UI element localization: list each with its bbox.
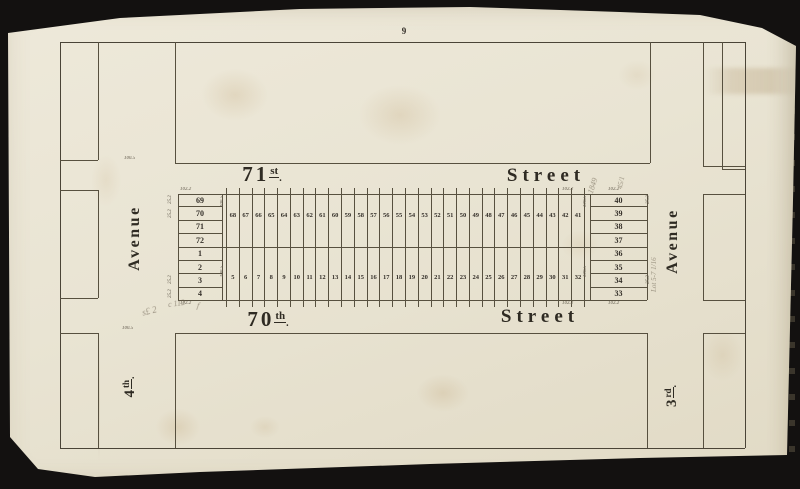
lot-number-south: 12: [316, 274, 328, 281]
lot-number-south: 32: [572, 274, 584, 281]
map-sheet: 9: [0, 0, 800, 489]
street-ordinal: st: [269, 165, 279, 178]
plate-border-left: [60, 42, 61, 448]
lot-cell: 39: [590, 207, 647, 220]
paper-stain: [190, 60, 280, 130]
lot-number-north: 61: [316, 212, 328, 219]
lot-number: 36: [615, 249, 623, 258]
avenue-label-4th: 4th.: [122, 352, 140, 422]
lot-cell: 68 5: [227, 188, 240, 307]
lot-cell: 47 26: [495, 188, 508, 307]
lot-cell: 36: [590, 248, 647, 261]
page-number: 9: [396, 26, 412, 36]
handwritten-note: f: [196, 301, 200, 310]
lot-number-north: 46: [508, 212, 520, 219]
avenue-number: 4: [122, 389, 138, 398]
lot-number-south: 26: [495, 274, 507, 281]
lot-number-south: 8: [265, 274, 277, 281]
lot-number-south: 15: [355, 274, 367, 281]
lot-number: 40: [615, 196, 623, 205]
parcel-line: [703, 333, 745, 334]
lot-cell: 41 32: [572, 188, 584, 307]
lot-number-north: 64: [278, 212, 290, 219]
parcel-line: [60, 190, 98, 191]
lot-number-south: 25: [483, 274, 495, 281]
lot-cell: 72: [178, 234, 222, 247]
paper-stain: [408, 368, 478, 418]
lot-cell: 55 18: [393, 188, 406, 307]
street-number: 71: [242, 162, 269, 186]
lot-cell: 66 7: [253, 188, 266, 307]
lot-number: 35: [615, 263, 623, 272]
lot-cell: 61 12: [316, 188, 329, 307]
street-ordinal: th: [274, 310, 286, 323]
dimension-label: 25.2: [168, 209, 173, 218]
lot-number-south: 24: [470, 274, 482, 281]
lot-cell: 57 16: [368, 188, 381, 307]
dimension-label: 25.2: [168, 195, 173, 204]
east-column-right: [647, 194, 648, 300]
west-column-right: [222, 194, 223, 300]
lot-number-north: 55: [393, 212, 405, 219]
lot-number-south: 16: [368, 274, 380, 281]
avenue-east-line: [722, 42, 723, 169]
lot-cell: 33: [590, 288, 647, 300]
lot-number-north: 65: [265, 212, 277, 219]
lot-number-north: 60: [329, 212, 341, 219]
lot-cell: 53 20: [419, 188, 432, 307]
lot-number-north: 43: [547, 212, 559, 219]
lot-number-south: 11: [304, 274, 316, 281]
lot-cell: 3: [178, 274, 222, 287]
lot-cell: 59 14: [342, 188, 355, 307]
handwritten-note: s£ 2: [141, 304, 158, 317]
parcel-line: [60, 298, 98, 299]
block-south-top: [175, 333, 647, 334]
avenue-ordinal: th: [121, 379, 132, 389]
lot-cell: 37: [590, 234, 647, 247]
dimension-label: 100.5: [122, 326, 133, 331]
plate-border-right: [745, 42, 746, 448]
avenue-label-3rd: 3rd.: [664, 361, 682, 431]
dimension-label: 102.2: [562, 301, 573, 306]
lot-cell: 64 9: [278, 188, 291, 307]
plate-border-bottom: [60, 448, 745, 449]
avenue-east-line: [703, 333, 704, 448]
lot-cell: 38: [590, 221, 647, 234]
lot-cell: 4: [178, 288, 222, 300]
handwritten-note: c 112: [167, 298, 185, 309]
parcel-line: [703, 166, 745, 167]
street-lot-grid: 68 5 67 6 66 7 65 8 64 9 63 10 62 11 61: [226, 188, 585, 307]
lot-cell: 49 24: [470, 188, 483, 307]
lot-cell: 62 11: [304, 188, 317, 307]
lot-cell: 42 31: [559, 188, 572, 307]
lot-number-north: 50: [457, 212, 469, 219]
lot-number: 70: [196, 209, 204, 218]
street-word-south: Street: [460, 306, 620, 328]
dimension-label: 102.2: [562, 187, 573, 192]
paper-stain: [86, 145, 126, 215]
lot-number-north: 49: [470, 212, 482, 219]
handwritten-note: 45/1: [616, 176, 626, 190]
lot-number-north: 56: [380, 212, 392, 219]
lot-number-south: 17: [380, 274, 392, 281]
dimension-label: 100.5: [124, 156, 135, 161]
lot-number-south: 5: [227, 274, 239, 281]
dimension-label: 25.2: [646, 195, 651, 204]
lot-number-south: 9: [278, 274, 290, 281]
lot-number-north: 45: [521, 212, 533, 219]
east-lot-column: 4039383736353433: [590, 194, 647, 300]
dimension-label: 25.2: [168, 289, 173, 298]
lot-number: 4: [198, 289, 202, 298]
street-label-71st: 71st.: [202, 162, 322, 187]
lot-cell: 34: [590, 274, 647, 287]
lot-cell: 50 23: [457, 188, 470, 307]
lot-number-south: 30: [547, 274, 559, 281]
lot-cell: 1: [178, 248, 222, 261]
paper-stain: [612, 55, 662, 95]
lot-number-north: 59: [342, 212, 354, 219]
lot-cell: 46 27: [508, 188, 521, 307]
lot-cell: 60 13: [329, 188, 342, 307]
lot-number-south: 22: [444, 274, 456, 281]
lot-number: 39: [615, 209, 623, 218]
lot-number-north: 47: [495, 212, 507, 219]
avenue-word-east: Avenue: [664, 181, 684, 301]
dimension-label: 100.5: [220, 266, 225, 277]
street-mark: .: [286, 318, 289, 329]
lot-cell: 67 6: [240, 188, 253, 307]
lot-number-south: 6: [240, 274, 252, 281]
parcel-line: [60, 333, 98, 334]
lot-number: 3: [198, 276, 202, 285]
lot-cell: 35: [590, 261, 647, 274]
lot-number-south: 19: [406, 274, 418, 281]
lot-number-north: 68: [227, 212, 239, 219]
dimension-label: 100.5: [583, 196, 588, 207]
lot-cell: 63 10: [291, 188, 304, 307]
lot-number-south: 27: [508, 274, 520, 281]
lot-number: 38: [615, 222, 623, 231]
street-word-north: Street: [466, 165, 626, 187]
paper-stain: [148, 402, 208, 452]
scan-background: 9: [0, 0, 800, 489]
avenue-word-west: Avenue: [126, 178, 146, 298]
lot-cell: 45 28: [521, 188, 534, 307]
block-south-left: [175, 333, 176, 448]
lot-number: 33: [615, 289, 623, 298]
lot-number-north: 67: [240, 212, 252, 219]
lot-number-north: 54: [406, 212, 418, 219]
lot-cell: 54 19: [406, 188, 419, 307]
lot-number-north: 57: [368, 212, 380, 219]
avenue-east-line: [703, 42, 704, 166]
lot-number-north: 63: [291, 212, 303, 219]
avenue-west-line: [98, 190, 99, 298]
lot-number-south: 28: [521, 274, 533, 281]
lot-cell: 40: [590, 194, 647, 207]
lot-cell: 65 8: [265, 188, 278, 307]
plate-border-top: [60, 42, 745, 43]
block-south-right: [647, 333, 648, 448]
street-number: 70: [247, 307, 274, 331]
avenue-number: 3: [664, 399, 680, 408]
lot-number-south: 18: [393, 274, 405, 281]
avenue-west-line: [98, 42, 99, 160]
lot-number-south: 31: [559, 274, 571, 281]
lot-number-north: 62: [304, 212, 316, 219]
dimension-label: 100.5: [220, 196, 225, 207]
lot-number: 34: [615, 276, 623, 285]
lot-number-north: 42: [559, 212, 571, 219]
lot-number-north: 44: [534, 212, 546, 219]
lot-number-south: 20: [419, 274, 431, 281]
lot-number-south: 7: [253, 274, 265, 281]
street-mark: .: [279, 173, 282, 184]
lot-number-north: 53: [419, 212, 431, 219]
block-north-left: [175, 42, 176, 163]
parcel-line: [60, 160, 98, 161]
lot-number: 37: [615, 236, 623, 245]
parcel-line: [703, 300, 745, 301]
lot-cell: 51 22: [444, 188, 457, 307]
lot-number-north: 52: [432, 212, 444, 219]
ink-bleedthrough: [705, 68, 797, 94]
lot-number-south: 14: [342, 274, 354, 281]
lot-cell: 43 30: [547, 188, 560, 307]
paper-stain: [345, 75, 455, 155]
dimension-label: 102.2: [608, 301, 619, 306]
lot-number: 71: [196, 222, 204, 231]
handwritten-note: Lot 5-7 1/16: [650, 257, 658, 292]
avenue-east-line: [703, 194, 704, 300]
parcel-line: [722, 169, 745, 170]
lot-cell: 58 15: [355, 188, 368, 307]
lot-cell: 56 17: [380, 188, 393, 307]
lot-cell: 70: [178, 207, 222, 220]
dimension-label: 100.5: [583, 266, 588, 277]
avenue-ordinal: rd: [663, 388, 674, 399]
lot-number-north: 58: [355, 212, 367, 219]
parcel-line: [703, 194, 745, 195]
lot-number-south: 23: [457, 274, 469, 281]
dimension-label: 102.2: [180, 187, 191, 192]
lot-cell: 48 25: [483, 188, 496, 307]
lot-number-south: 21: [432, 274, 444, 281]
lot-cell: 44 29: [534, 188, 547, 307]
lot-cell: 2: [178, 261, 222, 274]
avenue-west-line: [98, 333, 99, 448]
west-lot-column: 697071721234: [178, 194, 222, 300]
lot-number: 69: [196, 196, 204, 205]
lot-number-north: 48: [483, 212, 495, 219]
block-north-right: [650, 42, 651, 163]
paper-stain: [245, 412, 285, 442]
lot-number-north: 66: [253, 212, 265, 219]
dimension-label: 25.2: [168, 275, 173, 284]
lot-number-south: 10: [291, 274, 303, 281]
lot-cell: 52 21: [432, 188, 445, 307]
lot-cell: 71: [178, 221, 222, 234]
lot-number-south: 29: [534, 274, 546, 281]
lot-number: 1: [198, 249, 202, 258]
lot-number: 2: [198, 263, 202, 272]
lot-number-north: 41: [572, 212, 584, 219]
lot-number-south: 13: [329, 274, 341, 281]
lot-cell: 69: [178, 194, 222, 207]
lot-number: 72: [196, 236, 204, 245]
street-label-70th: 70th.: [208, 307, 328, 332]
lot-number-north: 51: [444, 212, 456, 219]
